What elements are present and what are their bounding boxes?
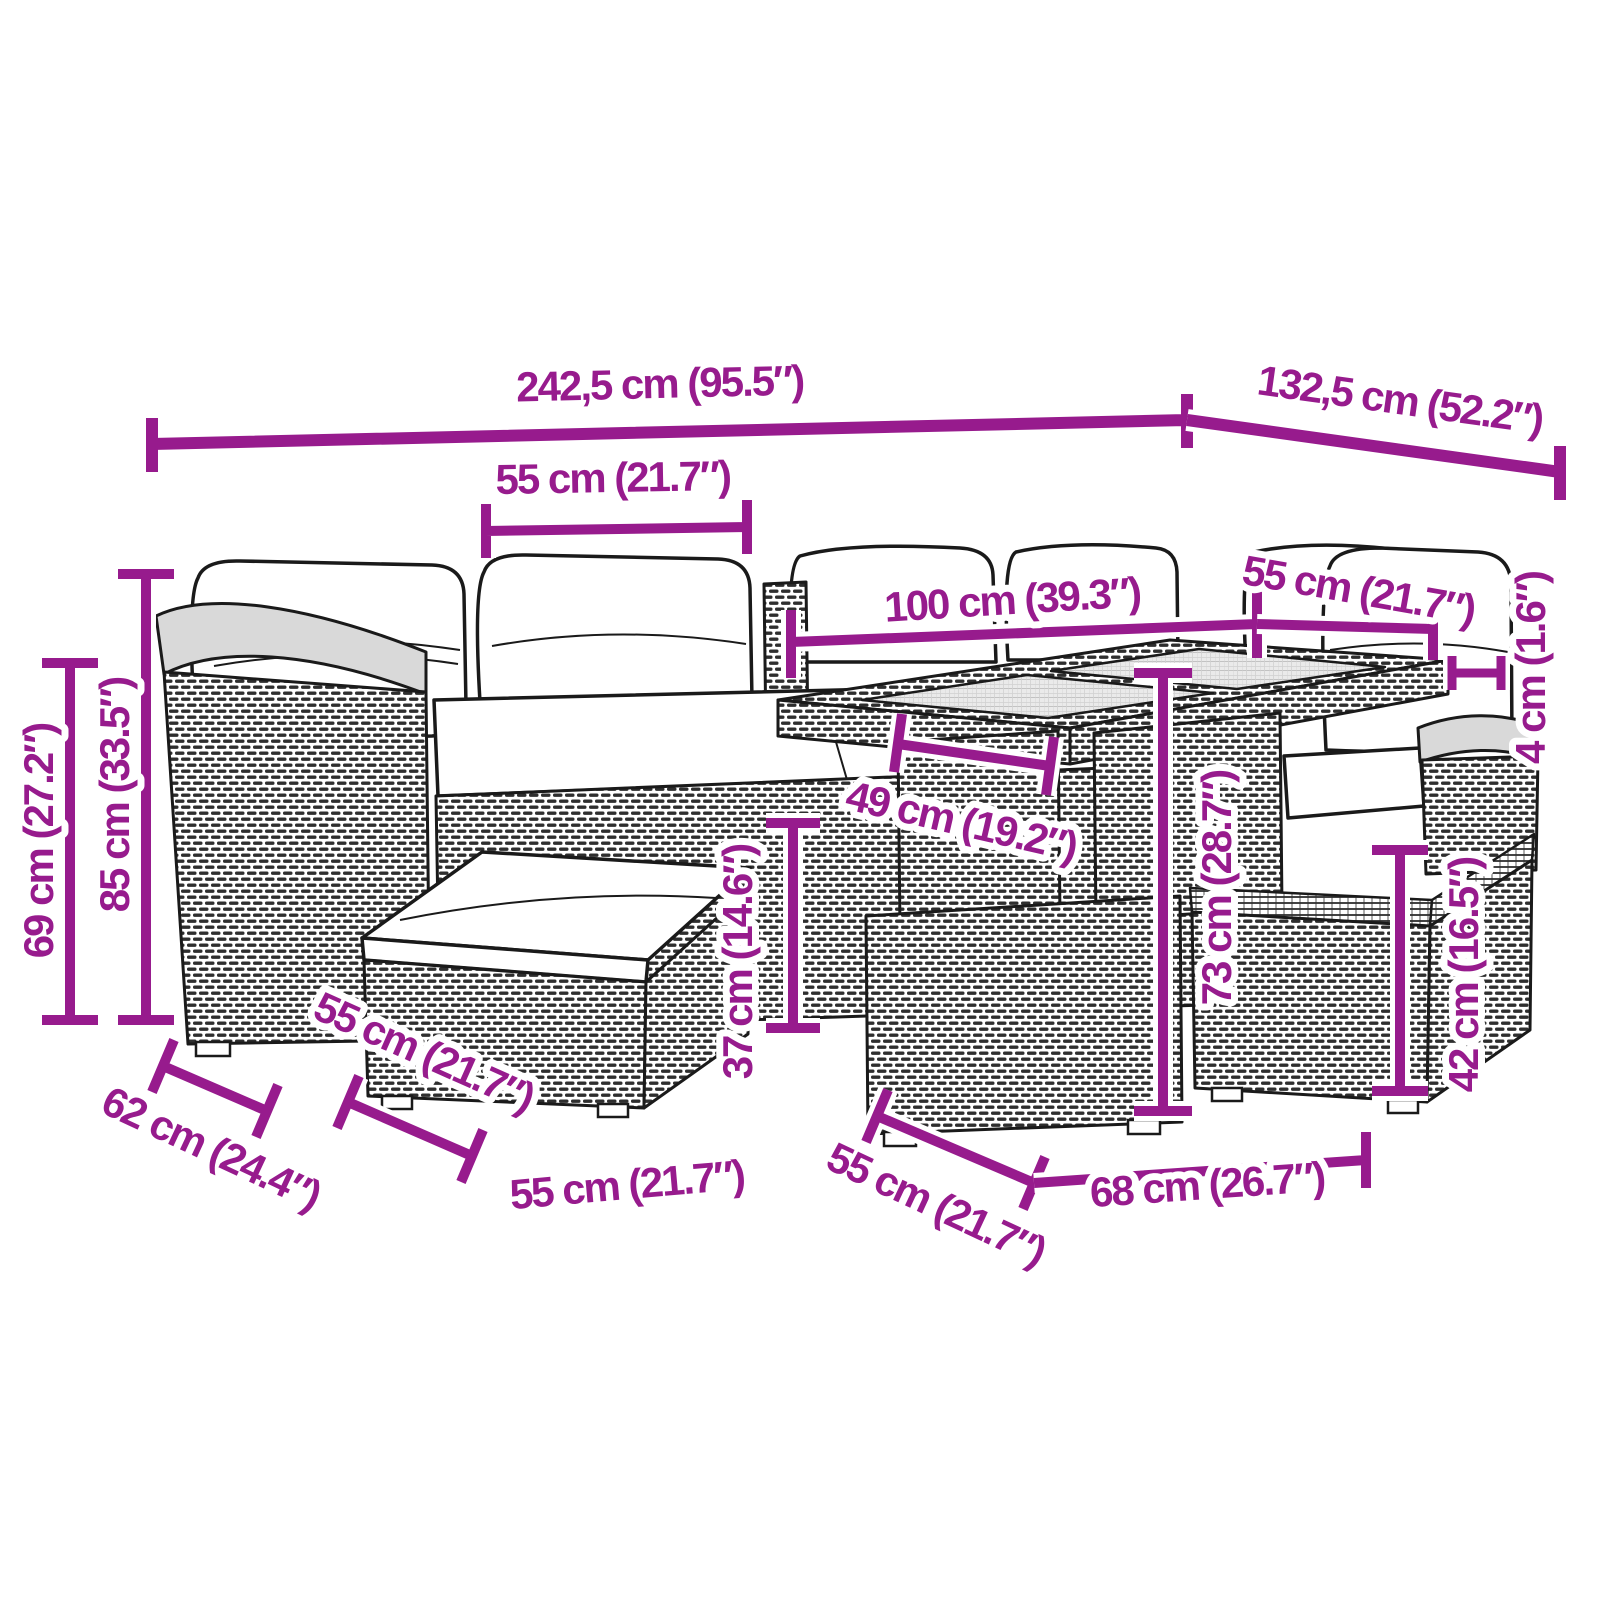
dimension-diagram: 242,5 cm (95.5″) 132,5 cm (52.2″) 55 cm …: [0, 0, 1600, 1600]
table-foot-right: [1128, 1120, 1160, 1134]
ottoman-foot-left: [1212, 1088, 1242, 1101]
dim-ottoman-height-label: 42 cm (16.5″): [1440, 858, 1487, 1093]
table-pedestal-base: [866, 896, 1182, 1134]
dim-sofa-module-width-label: 55 cm (21.7″): [495, 452, 730, 503]
dim-overall-width-label: 242,5 cm (95.5″): [516, 357, 804, 411]
armrest-foot: [196, 1042, 230, 1056]
right-seat-cushion: [1284, 748, 1424, 818]
footstool-foot-right: [598, 1104, 628, 1117]
ottoman-foot-right: [1388, 1100, 1418, 1113]
diagram-canvas: 242,5 cm (95.5″) 132,5 cm (52.2″) 55 cm …: [0, 0, 1600, 1600]
table-pedestal-right-column: [1094, 713, 1282, 920]
dim-armrest-height-label: 69 cm (27.2″): [15, 724, 62, 959]
dim-tabletop-thickness-label: 4 cm (1.6″): [1507, 572, 1554, 764]
dim-table-height-label: 73 cm (28.7″): [1193, 771, 1240, 1006]
dim-backrest-height-label: 85 cm (33.5″): [91, 678, 138, 913]
dim-seat-height-label: 37 cm (14.6″): [714, 845, 761, 1080]
footstool-foot-left: [382, 1096, 412, 1109]
